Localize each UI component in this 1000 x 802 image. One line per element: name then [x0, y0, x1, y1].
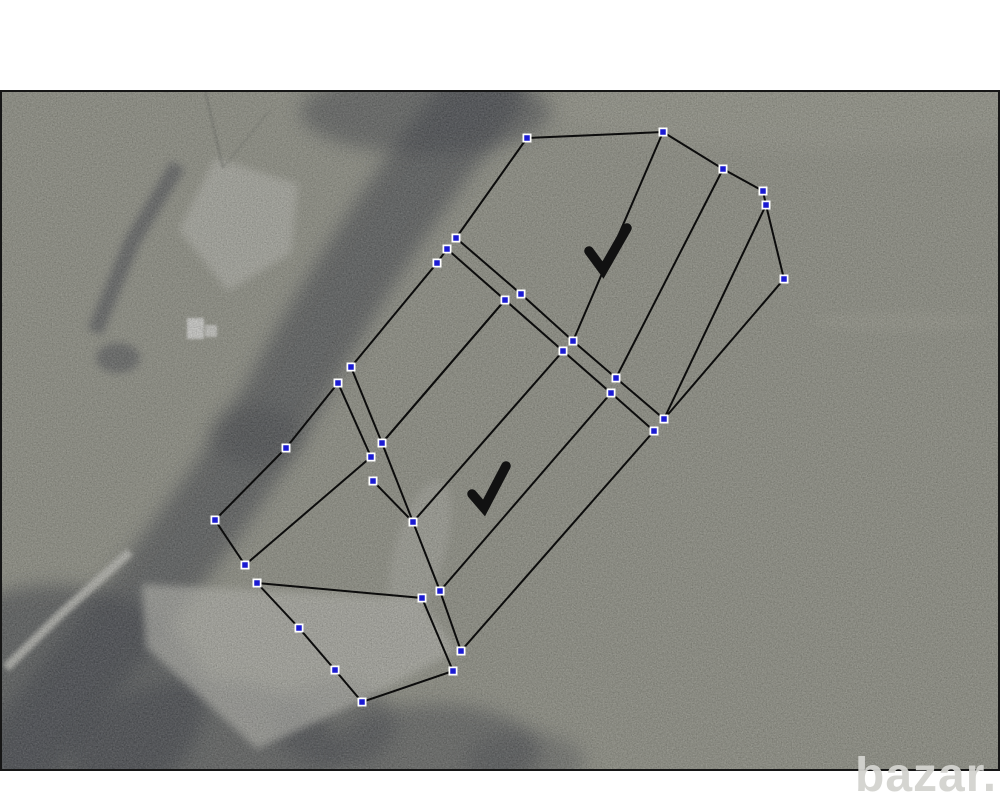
vertex-handle[interactable]	[295, 624, 304, 633]
vertex-handle[interactable]	[457, 647, 466, 656]
vertex-handle[interactable]	[211, 516, 220, 525]
vertex-handle[interactable]	[443, 245, 452, 254]
terrain-grain-light	[0, 90, 1000, 771]
vertex-handle[interactable]	[569, 337, 578, 346]
vertex-handle[interactable]	[331, 666, 340, 675]
vertex-handle[interactable]	[452, 234, 461, 243]
vertex-handle[interactable]	[449, 667, 458, 676]
vertex-handle[interactable]	[334, 379, 343, 388]
vertex-handle[interactable]	[762, 201, 771, 210]
vertex-handle[interactable]	[282, 444, 291, 453]
top-margin	[0, 0, 1000, 90]
vertex-handle[interactable]	[409, 518, 418, 527]
vertex-handle[interactable]	[501, 296, 510, 305]
vertex-handle[interactable]	[607, 389, 616, 398]
vertex-handle[interactable]	[650, 427, 659, 436]
vertex-handle[interactable]	[241, 561, 250, 570]
vertex-handle[interactable]	[358, 698, 367, 707]
vertex-handle[interactable]	[759, 187, 768, 196]
vertex-handle[interactable]	[433, 259, 442, 268]
vertex-handle[interactable]	[780, 275, 789, 284]
map-canvas[interactable]	[0, 90, 1000, 771]
vertex-handle[interactable]	[367, 453, 376, 462]
bottom-margin	[0, 771, 1000, 800]
vertex-handle[interactable]	[347, 363, 356, 372]
vertex-handle[interactable]	[659, 128, 668, 137]
vertex-handle[interactable]	[369, 477, 378, 486]
vertex-handle[interactable]	[418, 594, 427, 603]
vertex-handle[interactable]	[559, 347, 568, 356]
vertex-handle[interactable]	[660, 415, 669, 424]
vertex-handle[interactable]	[612, 374, 621, 383]
vertex-handle[interactable]	[517, 290, 526, 299]
vertex-handle[interactable]	[523, 134, 532, 143]
watermark-text: bazar.ua	[855, 752, 1000, 800]
aerial-terrain	[0, 90, 1000, 771]
vertex-handle[interactable]	[436, 587, 445, 596]
vertex-handle[interactable]	[378, 439, 387, 448]
vertex-handle[interactable]	[719, 165, 728, 174]
vertex-handle[interactable]	[253, 579, 262, 588]
